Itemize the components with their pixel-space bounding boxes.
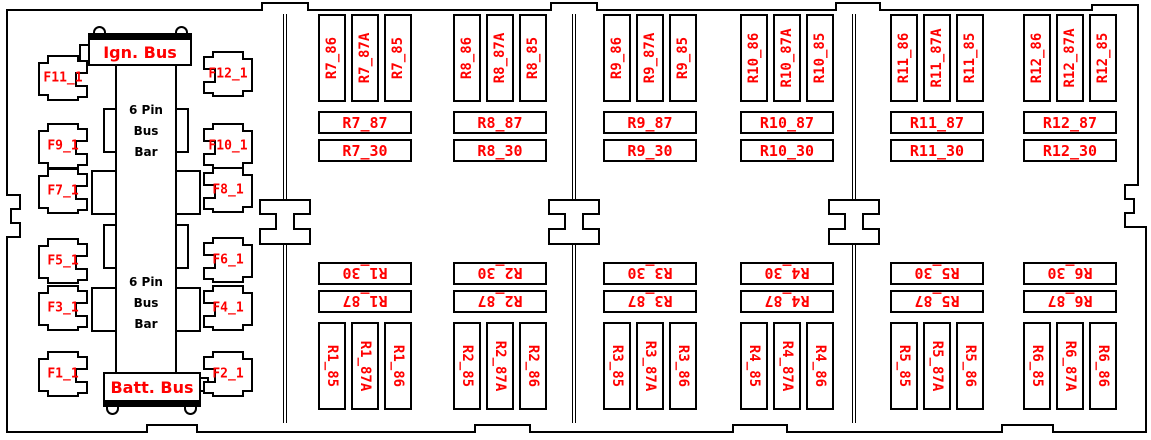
relay-terminal-R7_87: R7_87 bbox=[342, 114, 387, 132]
relay-terminal-R5_86: R5_86 bbox=[962, 345, 978, 387]
relay-terminal-R4_86: R4_86 bbox=[812, 345, 828, 387]
relay-terminal-box: R7_86 bbox=[318, 14, 346, 102]
relay-terminal-box: R10_86 bbox=[740, 14, 768, 102]
relay-terminal-box: R7_87A bbox=[351, 14, 379, 102]
module-divider bbox=[572, 243, 576, 423]
relay-terminal-box: R11_85 bbox=[956, 14, 984, 102]
relay-terminal-box: R9_87A bbox=[636, 14, 664, 102]
fuse-label: F10_1 bbox=[203, 139, 253, 154]
relay-terminal-R2_86: R2_86 bbox=[525, 345, 541, 387]
relay-terminal-box: R7_87 bbox=[318, 111, 412, 134]
relay-terminal-R12_30: R12_30 bbox=[1043, 142, 1097, 160]
bus-bar-tab bbox=[175, 287, 201, 332]
relay-terminal-box: R10_85 bbox=[806, 14, 834, 102]
module-divider bbox=[852, 243, 856, 423]
relay-terminal-box: R11_87 bbox=[890, 111, 984, 134]
relay-group-R7: R7_86 R7_87A R7_85 R7_87 R7_30 bbox=[318, 14, 412, 162]
relay-terminal-R11_30: R11_30 bbox=[910, 142, 964, 160]
relay-terminal-box: R11_86 bbox=[890, 14, 918, 102]
relay-terminal-box: R12_85 bbox=[1089, 14, 1117, 102]
fuse-F5_1: F5_1 bbox=[38, 238, 88, 284]
relay-terminal-box: R6_85 bbox=[1023, 322, 1051, 410]
bus-bar-tab bbox=[175, 224, 189, 269]
relay-terminal-box: R4_30 bbox=[740, 262, 834, 285]
relay-terminal-box: R1_30 bbox=[318, 262, 412, 285]
relay-terminal-R7_87A: R7_87A bbox=[357, 33, 373, 84]
relay-terminal-box: R12_86 bbox=[1023, 14, 1051, 102]
relay-terminal-box: R11_30 bbox=[890, 139, 984, 162]
bus-bar-tab bbox=[91, 287, 117, 332]
batt-bus-label: Batt. Bus bbox=[110, 378, 193, 397]
bus-bar-text-line: Bar bbox=[115, 314, 177, 335]
bus-bar-tab bbox=[103, 224, 117, 269]
relay-group-R1: R1_86 R1_87A R1_85 R1_87 R1_30 bbox=[318, 262, 412, 410]
relay-terminal-R12_87A: R12_87A bbox=[1062, 28, 1078, 87]
relay-terminal-R1_30: R1_30 bbox=[342, 265, 387, 283]
relay-terminal-R1_86: R1_86 bbox=[390, 345, 406, 387]
relay-terminal-R11_87A: R11_87A bbox=[929, 28, 945, 87]
relay-terminal-box: R6_87 bbox=[1023, 290, 1117, 313]
module-divider bbox=[852, 14, 856, 202]
relay-terminal-box: R8_85 bbox=[519, 14, 547, 102]
relay-terminal-R9_87A: R9_87A bbox=[642, 33, 658, 84]
module-divider bbox=[283, 14, 287, 202]
relay-terminal-box: R5_86 bbox=[956, 322, 984, 410]
relay-terminal-R4_87: R4_87 bbox=[764, 293, 809, 311]
relay-group-R12: R12_86 R12_87A R12_85 R12_87 R12_30 bbox=[1023, 14, 1117, 162]
relay-group-R4: R4_86 R4_87A R4_85 R4_87 R4_30 bbox=[740, 262, 834, 410]
relay-terminal-R1_87: R1_87 bbox=[342, 293, 387, 311]
relay-terminal-R12_87: R12_87 bbox=[1043, 114, 1097, 132]
relay-terminal-box: R2_87A bbox=[486, 322, 514, 410]
bus-bar-text-line: Bus bbox=[115, 121, 177, 142]
relay-terminal-R9_30: R9_30 bbox=[627, 142, 672, 160]
fuse-label: F2_1 bbox=[203, 367, 253, 382]
batt-bus: Batt. Bus bbox=[103, 372, 201, 402]
relay-terminal-R6_85: R6_85 bbox=[1029, 345, 1045, 387]
relay-terminal-box: R5_30 bbox=[890, 262, 984, 285]
relay-terminal-R1_87A: R1_87A bbox=[357, 341, 373, 392]
relay-terminal-R3_87: R3_87 bbox=[627, 293, 672, 311]
relay-terminal-box: R8_87 bbox=[453, 111, 547, 134]
fuse-box-diagram: Ign. Bus 6 Pin Bus Bar 6 Pin Bus Bar Bat… bbox=[0, 0, 1151, 440]
relay-terminal-R4_87A: R4_87A bbox=[779, 341, 795, 392]
relay-terminal-R5_87A: R5_87A bbox=[929, 341, 945, 392]
fuse-F12_1: F12_1 bbox=[203, 51, 253, 97]
relay-terminal-box: R2_87 bbox=[453, 290, 547, 313]
relay-terminal-R3_86: R3_86 bbox=[675, 345, 691, 387]
fuse-label: F5_1 bbox=[38, 254, 88, 269]
relay-group-R8: R8_86 R8_87A R8_85 R8_87 R8_30 bbox=[453, 14, 547, 162]
relay-terminal-box: R9_30 bbox=[603, 139, 697, 162]
bus-bar-tab bbox=[175, 108, 189, 153]
relay-terminal-R8_86: R8_86 bbox=[459, 37, 475, 79]
module-connector bbox=[259, 199, 311, 245]
fuse-F1_1: F1_1 bbox=[38, 351, 88, 397]
relay-terminal-R7_30: R7_30 bbox=[342, 142, 387, 160]
relay-terminal-R3_87A: R3_87A bbox=[642, 341, 658, 392]
fuse-label: F11_1 bbox=[38, 71, 88, 86]
bus-bar-upper-text: 6 Pin Bus Bar bbox=[115, 100, 177, 163]
fuse-F10_1: F10_1 bbox=[203, 123, 253, 169]
relay-terminal-R9_86: R9_86 bbox=[609, 37, 625, 79]
relay-terminal-box: R4_85 bbox=[740, 322, 768, 410]
relay-terminal-R10_87A: R10_87A bbox=[779, 28, 795, 87]
relay-terminal-box: R8_87A bbox=[486, 14, 514, 102]
bus-bar-tab bbox=[175, 170, 201, 215]
relay-terminal-box: R8_30 bbox=[453, 139, 547, 162]
relay-terminal-box: R6_30 bbox=[1023, 262, 1117, 285]
fuse-F7_1: F7_1 bbox=[38, 168, 88, 214]
relay-group-R9: R9_86 R9_87A R9_85 R9_87 R9_30 bbox=[603, 14, 697, 162]
bus-bar-text-line: 6 Pin bbox=[115, 100, 177, 121]
relay-terminal-R5_30: R5_30 bbox=[914, 265, 959, 283]
fuse-label: F9_1 bbox=[38, 139, 88, 154]
relay-terminal-box: R12_87A bbox=[1056, 14, 1084, 102]
relay-terminal-R8_85: R8_85 bbox=[525, 37, 541, 79]
relay-terminal-box: R7_30 bbox=[318, 139, 412, 162]
relay-terminal-R11_85: R11_85 bbox=[962, 33, 978, 84]
relay-terminal-R10_85: R10_85 bbox=[812, 33, 828, 84]
fuse-label: F8_1 bbox=[203, 183, 253, 198]
relay-terminal-box: R3_87 bbox=[603, 290, 697, 313]
relay-terminal-box: R10_30 bbox=[740, 139, 834, 162]
relay-group-R10: R10_86 R10_87A R10_85 R10_87 R10_30 bbox=[740, 14, 834, 162]
fuse-F6_1: F6_1 bbox=[203, 237, 253, 283]
relay-terminal-box: R3_30 bbox=[603, 262, 697, 285]
fuse-label: F7_1 bbox=[38, 184, 88, 199]
relay-terminal-R6_30: R6_30 bbox=[1047, 265, 1092, 283]
relay-terminal-R6_87A: R6_87A bbox=[1062, 341, 1078, 392]
ign-bus-label: Ign. Bus bbox=[103, 43, 177, 62]
relay-terminal-R10_86: R10_86 bbox=[746, 33, 762, 84]
bus-bar-text-line: Bus bbox=[115, 293, 177, 314]
module-connector bbox=[828, 199, 880, 245]
relay-group-R6: R6_86 R6_87A R6_85 R6_87 R6_30 bbox=[1023, 262, 1117, 410]
fuse-F4_1: F4_1 bbox=[203, 285, 253, 331]
relay-terminal-R8_30: R8_30 bbox=[477, 142, 522, 160]
fuse-F2_1: F2_1 bbox=[203, 351, 253, 397]
relay-terminal-R11_87: R11_87 bbox=[910, 114, 964, 132]
relay-terminal-box: R1_85 bbox=[318, 322, 346, 410]
relay-terminal-R2_87A: R2_87A bbox=[492, 341, 508, 392]
relay-terminal-box: R5_85 bbox=[890, 322, 918, 410]
relay-terminal-R4_85: R4_85 bbox=[746, 345, 762, 387]
relay-terminal-box: R4_87 bbox=[740, 290, 834, 313]
relay-terminal-box: R2_30 bbox=[453, 262, 547, 285]
fuse-label: F6_1 bbox=[203, 253, 253, 268]
relay-terminal-box: R9_86 bbox=[603, 14, 631, 102]
relay-terminal-R6_86: R6_86 bbox=[1095, 345, 1111, 387]
ign-bus: Ign. Bus bbox=[88, 38, 192, 66]
fuse-F11_1: F11_1 bbox=[38, 55, 88, 101]
relay-terminal-R8_87A: R8_87A bbox=[492, 33, 508, 84]
relay-terminal-R7_85: R7_85 bbox=[390, 37, 406, 79]
fuse-F8_1: F8_1 bbox=[203, 167, 253, 213]
bus-bar-lower-text: 6 Pin Bus Bar bbox=[115, 272, 177, 335]
relay-terminal-R9_85: R9_85 bbox=[675, 37, 691, 79]
fuse-F9_1: F9_1 bbox=[38, 123, 88, 169]
relay-terminal-box: R12_30 bbox=[1023, 139, 1117, 162]
relay-terminal-R6_87: R6_87 bbox=[1047, 293, 1092, 311]
fuse-label: F1_1 bbox=[38, 367, 88, 382]
fuse-F3_1: F3_1 bbox=[38, 285, 88, 331]
relay-terminal-R11_86: R11_86 bbox=[896, 33, 912, 84]
bus-bar-tab bbox=[91, 170, 117, 215]
relay-terminal-box: R3_87A bbox=[636, 322, 664, 410]
relay-terminal-R1_85: R1_85 bbox=[324, 345, 340, 387]
bus-bar-text-line: 6 Pin bbox=[115, 272, 177, 293]
relay-terminal-R2_30: R2_30 bbox=[477, 265, 522, 283]
relay-terminal-box: R5_87 bbox=[890, 290, 984, 313]
relay-terminal-R8_87: R8_87 bbox=[477, 114, 522, 132]
fuse-label: F3_1 bbox=[38, 301, 88, 316]
relay-terminal-box: R10_87 bbox=[740, 111, 834, 134]
relay-terminal-R7_86: R7_86 bbox=[324, 37, 340, 79]
relay-group-R5: R5_86 R5_87A R5_85 R5_87 R5_30 bbox=[890, 262, 984, 410]
bus-bar-text-line: Bar bbox=[115, 142, 177, 163]
relay-terminal-R2_87: R2_87 bbox=[477, 293, 522, 311]
relay-terminal-R4_30: R4_30 bbox=[764, 265, 809, 283]
relay-terminal-R5_87: R5_87 bbox=[914, 293, 959, 311]
relay-terminal-box: R10_87A bbox=[773, 14, 801, 102]
relay-terminal-R3_85: R3_85 bbox=[609, 345, 625, 387]
fuse-label: F12_1 bbox=[203, 67, 253, 82]
relay-terminal-box: R4_87A bbox=[773, 322, 801, 410]
module-connector bbox=[548, 199, 600, 245]
relay-terminal-box: R12_87 bbox=[1023, 111, 1117, 134]
relay-terminal-R9_87: R9_87 bbox=[627, 114, 672, 132]
relay-terminal-box: R2_86 bbox=[519, 322, 547, 410]
relay-terminal-R10_30: R10_30 bbox=[760, 142, 814, 160]
relay-terminal-box: R4_86 bbox=[806, 322, 834, 410]
relay-terminal-box: R5_87A bbox=[923, 322, 951, 410]
relay-terminal-box: R11_87A bbox=[923, 14, 951, 102]
relay-terminal-box: R9_87 bbox=[603, 111, 697, 134]
fuse-label: F4_1 bbox=[203, 301, 253, 316]
relay-group-R11: R11_86 R11_87A R11_85 R11_87 R11_30 bbox=[890, 14, 984, 162]
module-divider bbox=[283, 243, 287, 423]
relay-terminal-R5_85: R5_85 bbox=[896, 345, 912, 387]
relay-terminal-box: R7_85 bbox=[384, 14, 412, 102]
relay-group-R3: R3_86 R3_87A R3_85 R3_87 R3_30 bbox=[603, 262, 697, 410]
relay-terminal-box: R1_86 bbox=[384, 322, 412, 410]
relay-terminal-box: R6_87A bbox=[1056, 322, 1084, 410]
relay-terminal-box: R1_87A bbox=[351, 322, 379, 410]
relay-terminal-R2_85: R2_85 bbox=[459, 345, 475, 387]
relay-terminal-box: R8_86 bbox=[453, 14, 481, 102]
relay-terminal-box: R6_86 bbox=[1089, 322, 1117, 410]
relay-terminal-box: R9_85 bbox=[669, 14, 697, 102]
relay-terminal-R12_85: R12_85 bbox=[1095, 33, 1111, 84]
relay-group-R2: R2_86 R2_87A R2_85 R2_87 R2_30 bbox=[453, 262, 547, 410]
relay-terminal-box: R1_87 bbox=[318, 290, 412, 313]
relay-terminal-box: R2_85 bbox=[453, 322, 481, 410]
relay-terminal-R3_30: R3_30 bbox=[627, 265, 672, 283]
relay-terminal-box: R3_86 bbox=[669, 322, 697, 410]
relay-terminal-box: R3_85 bbox=[603, 322, 631, 410]
module-divider bbox=[572, 14, 576, 202]
relay-terminal-R10_87: R10_87 bbox=[760, 114, 814, 132]
relay-terminal-R12_86: R12_86 bbox=[1029, 33, 1045, 84]
